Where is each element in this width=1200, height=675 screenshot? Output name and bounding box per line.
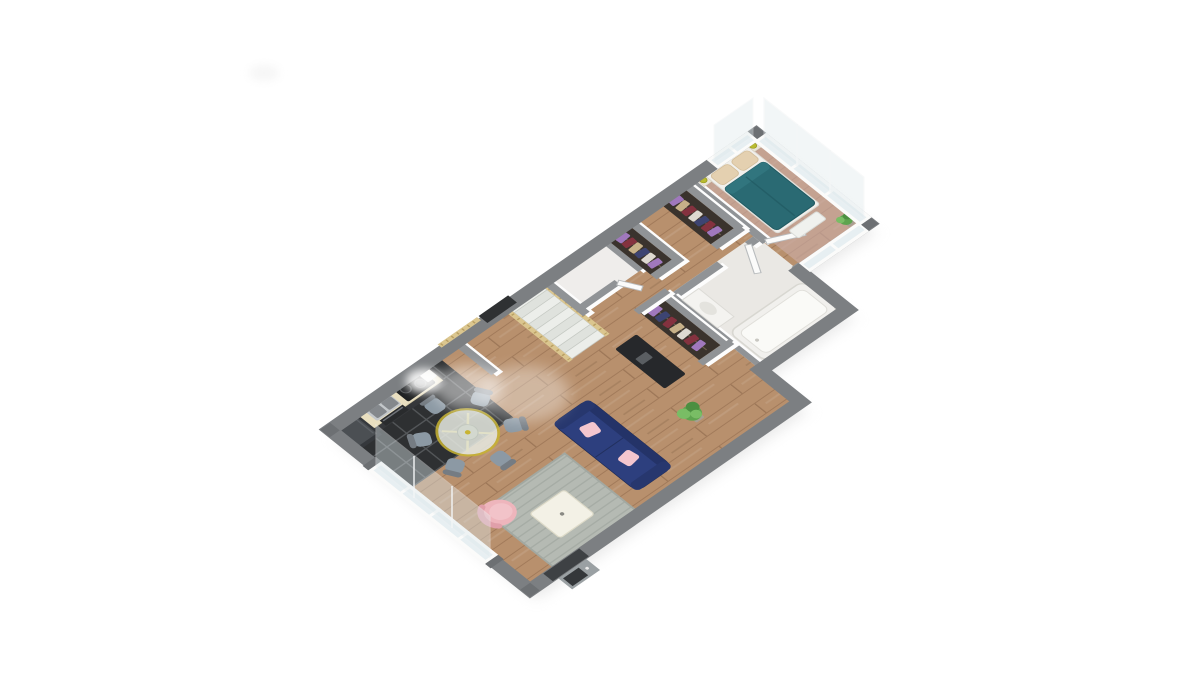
render-artifact-smudge [249,65,279,81]
apartment-plan [316,124,981,610]
canvas-background [0,0,1200,675]
floor-plan-render [0,0,1200,675]
